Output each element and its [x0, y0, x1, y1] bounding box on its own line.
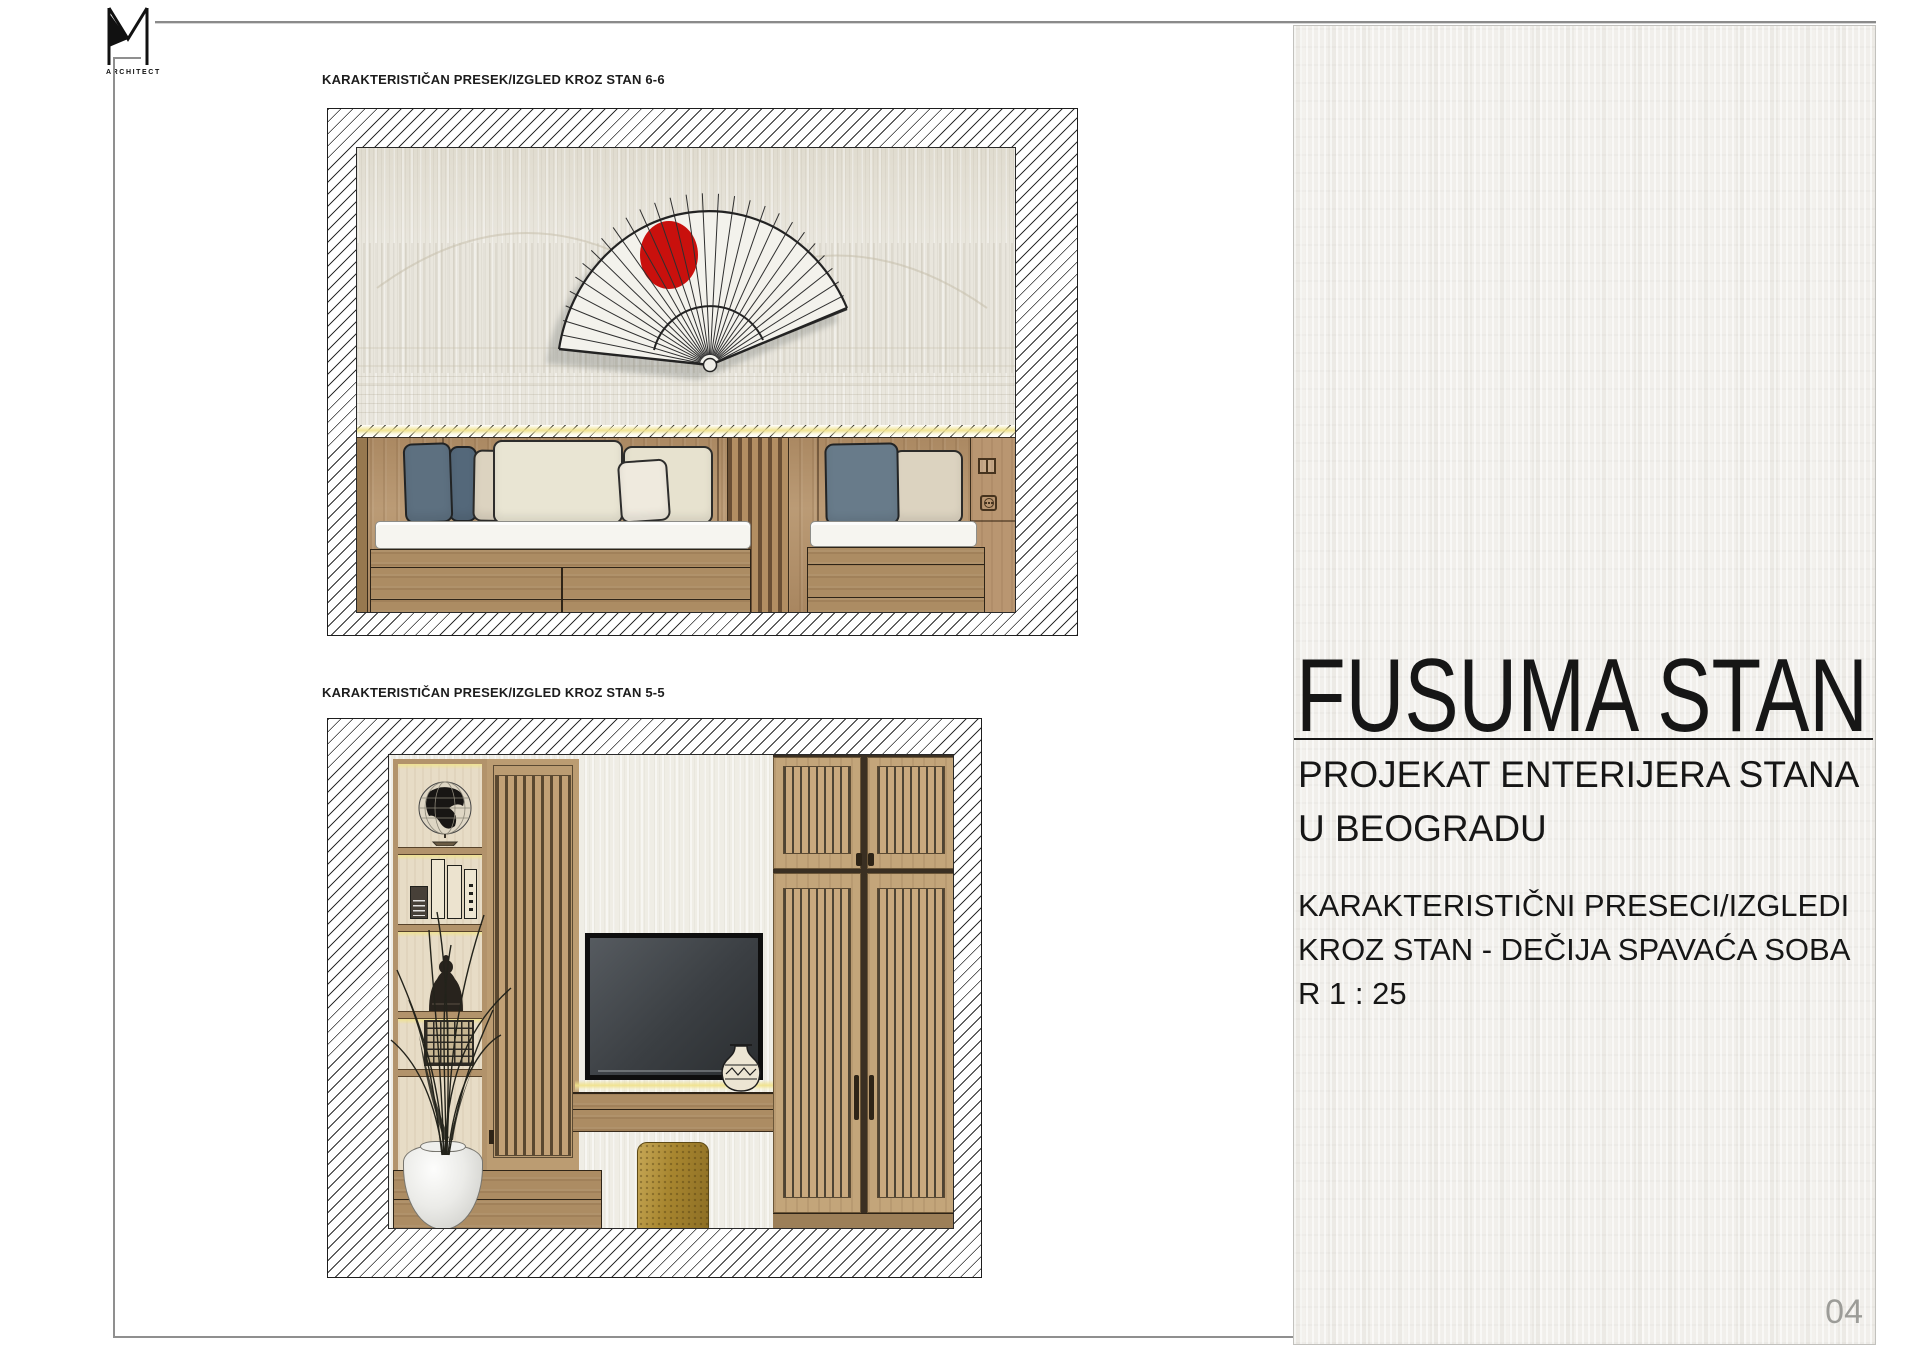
drawing-2-content [388, 754, 954, 1229]
fan-pivot [704, 359, 717, 372]
globe-icon [415, 780, 475, 846]
fan-artwork [542, 178, 862, 393]
wall-edge-board [357, 438, 368, 613]
wardrobe-handle [868, 853, 874, 866]
description-line-2: KROZ STAN - DEČIJA SPAVAĆA SOBA [1298, 928, 1850, 972]
page-number: 04 [1825, 1293, 1863, 1332]
subtitle-line-1: PROJEKAT ENTERIJERA STANA [1298, 748, 1859, 802]
mattress-right-bed [810, 521, 977, 547]
plant-icon [389, 840, 549, 1160]
wardrobe-top-door-right [867, 757, 954, 869]
description-line-3: R 1 : 25 [1298, 972, 1850, 1016]
drawing-1-content [356, 147, 1016, 613]
power-socket-icon [980, 495, 997, 511]
top-rule [155, 21, 1876, 24]
drawing-1 [327, 108, 1078, 636]
shelf-led [398, 764, 482, 769]
wardrobe-handle [856, 853, 862, 866]
pillow-blue-right [824, 442, 899, 525]
subtitle-line-2: U BEOGRADU [1298, 802, 1859, 856]
bedroom-wall [357, 148, 1016, 425]
gold-stool [637, 1142, 709, 1229]
wardrobe [773, 755, 954, 1229]
drawing-2-label: KARAKTERISTIČAN PRESEK/IZGLED KROZ STAN … [322, 685, 665, 700]
bed-base-right [807, 547, 985, 613]
mattress-left-bed [375, 521, 751, 549]
drawer [808, 564, 984, 597]
pillow-beige-right [893, 450, 963, 524]
title-underline [1294, 738, 1873, 740]
description-line-1: KARAKTERISTIČNI PRESECI/IZGLEDI [1298, 884, 1850, 928]
wardrobe-tall-door-left [773, 873, 861, 1213]
wood-headboard-wall [357, 437, 1016, 613]
deco-vase-icon [715, 1043, 767, 1093]
bed-base-left [370, 549, 751, 613]
wardrobe-plinth [773, 1213, 954, 1229]
project-subtitle: PROJEKAT ENTERIJERA STANA U BEOGRADU [1298, 748, 1859, 856]
wardrobe-handle [869, 1075, 874, 1120]
wardrobe-top-door-left [773, 757, 861, 869]
led-strip-bedroom [357, 425, 1016, 437]
drawing-2 [327, 718, 982, 1278]
sheet-description: KARAKTERISTIČNI PRESECI/IZGLEDI KROZ STA… [1298, 884, 1850, 1016]
pillow-cream-large [493, 440, 623, 524]
info-panel: FUSUMA STAN PROJEKAT ENTERIJERA STANA U … [1293, 25, 1876, 1345]
drawer [573, 1109, 773, 1131]
media-counter [573, 1092, 773, 1132]
wardrobe-tall-door-right [867, 873, 954, 1213]
drawing-1-label: KARAKTERISTIČAN PRESEK/IZGLED KROZ STAN … [322, 72, 665, 87]
wardrobe-handle [854, 1075, 859, 1120]
pillow-slate [403, 442, 454, 524]
drawer [808, 597, 984, 613]
light-switch-icon [978, 458, 996, 474]
drawer [371, 599, 750, 613]
pillow-white-small [617, 458, 671, 523]
drawer [371, 567, 750, 599]
